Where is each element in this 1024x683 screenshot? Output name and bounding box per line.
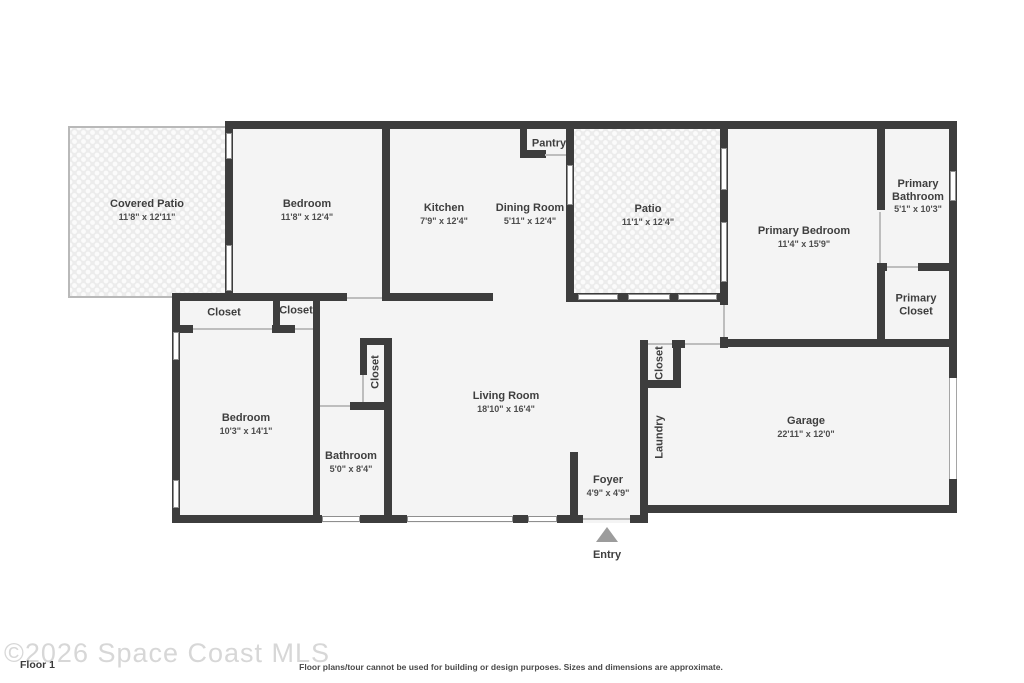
wall — [877, 121, 885, 210]
door-opening — [193, 328, 272, 330]
wall — [877, 263, 885, 347]
window — [322, 516, 360, 522]
room-label-laundry: Laundry — [654, 415, 667, 458]
room-label-primary-closet: Primary Closet — [888, 292, 944, 317]
window — [407, 516, 513, 522]
wall — [918, 263, 957, 271]
door-opening — [545, 154, 566, 156]
window — [173, 480, 179, 508]
wall — [566, 121, 574, 302]
door-opening — [295, 328, 313, 330]
wall — [520, 150, 546, 158]
room-name: Pantry — [532, 138, 566, 151]
wall — [172, 515, 322, 523]
door-opening — [723, 305, 725, 337]
room-name: Primary Bedroom — [758, 225, 850, 238]
garage-door-opening — [949, 378, 957, 479]
room-dimensions: 11'1" x 12'4" — [622, 217, 674, 227]
room-name: Covered Patio — [110, 198, 184, 211]
room-dimensions: 11'8" x 12'11" — [110, 212, 184, 222]
door-opening — [887, 266, 918, 268]
wall — [272, 325, 295, 333]
room-name: Bathroom — [325, 450, 377, 463]
floor-plan-page: Covered Patio11'8" x 12'11"Bedroom11'8" … — [0, 0, 1024, 683]
room-dimensions: 22'11" x 12'0" — [777, 429, 834, 439]
room-label-primary-bathroom: Primary Bathroom5'1" x 10'3" — [885, 178, 951, 214]
wall — [350, 402, 392, 410]
wall — [949, 121, 957, 347]
wall — [640, 340, 648, 523]
room-label-living-room: Living Room18'10" x 16'4" — [473, 390, 540, 414]
window — [628, 294, 670, 300]
room-label-primary-bedroom: Primary Bedroom11'4" x 15'9" — [758, 225, 850, 249]
wall — [382, 121, 390, 301]
room-label-covered-patio: Covered Patio11'8" x 12'11" — [110, 198, 184, 222]
room-label-kitchen: Kitchen7'9" x 12'4" — [420, 202, 468, 226]
entry-arrow-icon — [596, 527, 618, 542]
window — [678, 294, 717, 300]
room-dimensions: 4'9" x 4'9" — [587, 488, 630, 498]
room-dimensions: 7'9" x 12'4" — [420, 216, 468, 226]
room-name: Closet — [207, 307, 241, 320]
door-opening — [685, 343, 720, 345]
window — [721, 148, 727, 190]
room-dimensions: 5'1" x 10'3" — [885, 204, 951, 214]
wall — [382, 293, 493, 301]
room-name: Garage — [777, 415, 834, 428]
room-dimensions: 11'4" x 15'9" — [758, 239, 850, 249]
door-opening — [879, 212, 881, 263]
window — [226, 133, 232, 159]
window — [567, 165, 573, 205]
window — [528, 516, 557, 522]
door-opening — [583, 518, 630, 520]
room-dimensions: 5'11" x 12'4" — [496, 216, 564, 226]
room-label-dining-room: Dining Room5'11" x 12'4" — [496, 202, 564, 226]
door-opening — [362, 375, 364, 402]
floor-label: Floor 1 — [20, 659, 55, 671]
room-label-bedroom-bottom: Bedroom10'3" x 14'1" — [220, 412, 273, 436]
wall — [570, 452, 578, 523]
wall — [225, 121, 957, 129]
wall — [172, 293, 347, 301]
room-name: Dining Room — [496, 202, 564, 215]
door-opening — [320, 405, 350, 407]
room-label-patio: Patio11'1" x 12'4" — [622, 203, 674, 227]
room-name: Living Room — [473, 390, 540, 403]
wall — [513, 515, 528, 523]
room-name: Laundry — [654, 415, 667, 458]
room-name: Primary Bathroom — [885, 178, 951, 203]
room-name: Primary Closet — [888, 292, 944, 317]
room-name: Closet — [654, 346, 667, 380]
room-label-closet-1: Closet — [207, 307, 241, 320]
room-name: Foyer — [587, 474, 630, 487]
door-opening — [347, 297, 382, 299]
room-label-bathroom: Bathroom5'0" x 8'4" — [325, 450, 377, 474]
room-label-bedroom-top: Bedroom11'8" x 12'4" — [281, 198, 333, 222]
room-label-closet-2: Closet — [279, 305, 313, 318]
room-label-laundry-closet: Closet — [654, 346, 667, 380]
window — [578, 294, 618, 300]
room-label-foyer: Foyer4'9" x 4'9" — [587, 474, 630, 498]
wall — [640, 505, 957, 513]
room-name: Kitchen — [420, 202, 468, 215]
room-name: Bedroom — [281, 198, 333, 211]
room-label-garage: Garage22'11" x 12'0" — [777, 415, 834, 439]
window — [226, 245, 232, 291]
room-dimensions: 18'10" x 16'4" — [473, 404, 540, 414]
wall — [720, 339, 957, 347]
disclaimer: Floor plans/tour cannot be used for buil… — [299, 662, 723, 672]
window — [721, 222, 727, 282]
room-label-pantry: Pantry — [532, 138, 566, 151]
room-name: Closet — [279, 305, 313, 318]
wall — [313, 293, 320, 523]
entry-label: Entry — [593, 549, 621, 561]
room-label-closet-hall: Closet — [370, 355, 383, 389]
room-dimensions: 11'8" x 12'4" — [281, 212, 333, 222]
door-opening — [648, 343, 672, 345]
room-name: Closet — [370, 355, 383, 389]
room-dimensions: 10'3" x 14'1" — [220, 426, 273, 436]
room-dimensions: 5'0" x 8'4" — [325, 464, 377, 474]
wall — [384, 338, 392, 523]
wall — [640, 380, 681, 388]
room-name: Bedroom — [220, 412, 273, 425]
room-name: Patio — [622, 203, 674, 216]
wall — [360, 338, 392, 345]
window — [173, 332, 179, 360]
